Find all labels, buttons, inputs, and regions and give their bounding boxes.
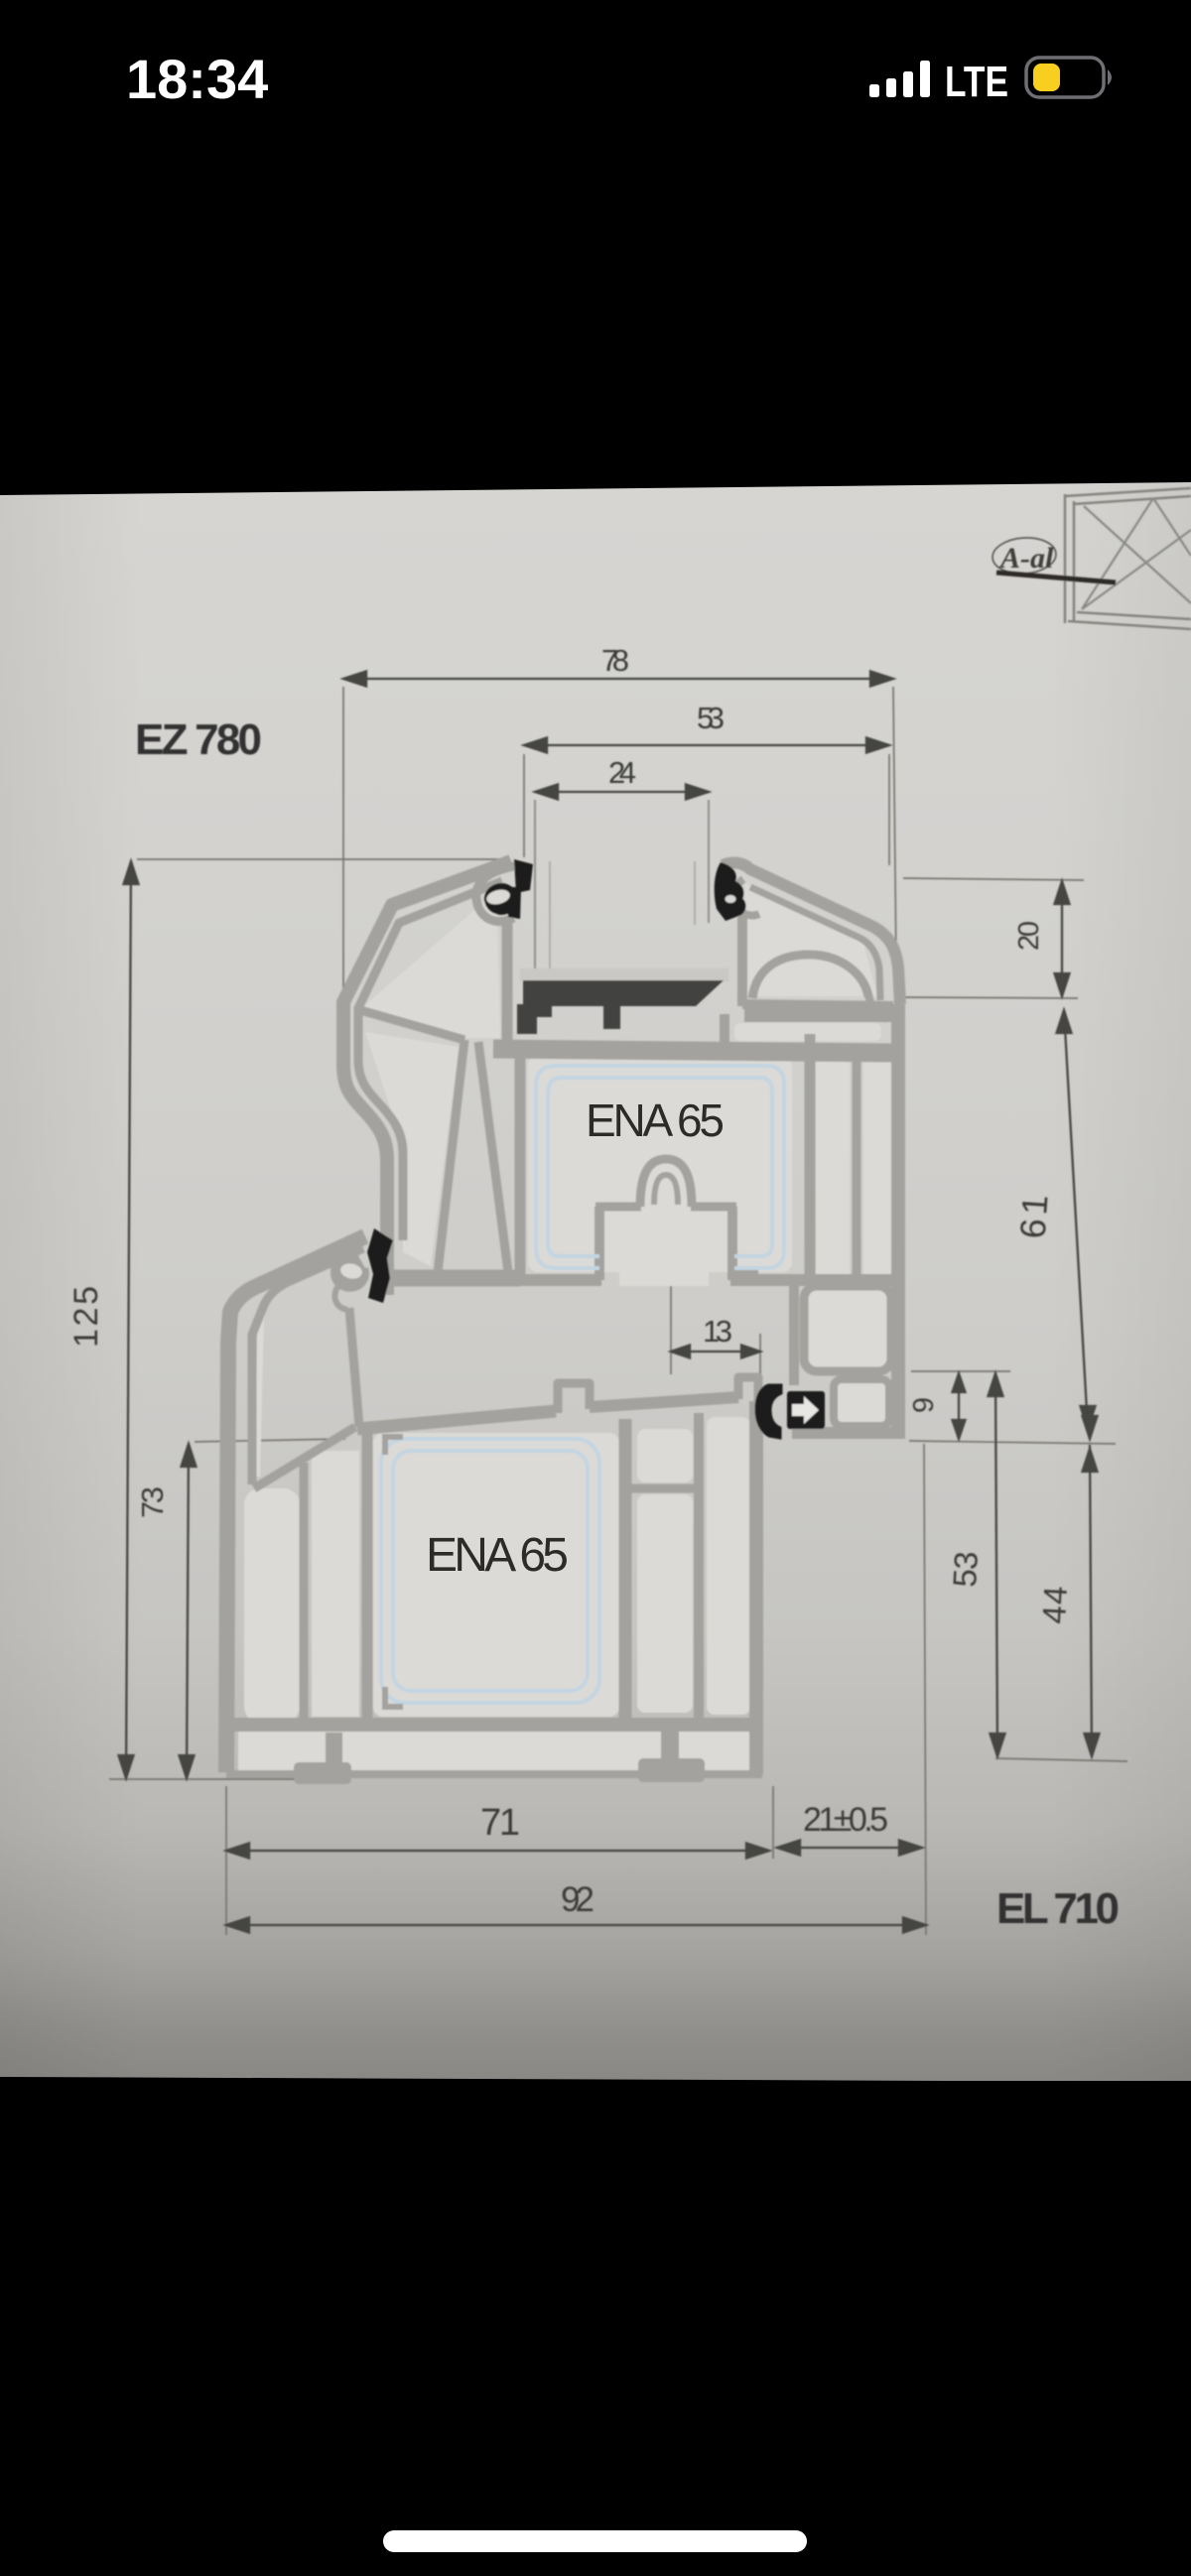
svg-text:18:34: 18:34 [126, 48, 268, 110]
svg-text:24: 24 [608, 755, 636, 790]
svg-text:78: 78 [601, 643, 629, 678]
svg-text:EL 710: EL 710 [996, 1884, 1120, 1933]
svg-text:A-al: A-al [998, 542, 1054, 575]
svg-text:71: 71 [480, 1802, 520, 1844]
svg-text:53: 53 [697, 701, 725, 735]
svg-text:92: 92 [561, 1880, 595, 1919]
svg-text:EZ 780: EZ 780 [135, 715, 262, 764]
svg-text:20: 20 [1013, 921, 1045, 951]
svg-text:LTE: LTE [945, 58, 1008, 106]
svg-text:ENA 65: ENA 65 [426, 1529, 569, 1582]
svg-text:73: 73 [135, 1486, 170, 1518]
svg-text:21±0.5: 21±0.5 [803, 1801, 888, 1839]
svg-text:13: 13 [703, 1314, 732, 1349]
svg-text:125: 125 [67, 1286, 105, 1348]
svg-text:53: 53 [946, 1550, 985, 1588]
svg-text:ENA 65: ENA 65 [586, 1095, 725, 1146]
svg-text:44: 44 [1035, 1585, 1074, 1624]
svg-text:9: 9 [908, 1397, 940, 1413]
